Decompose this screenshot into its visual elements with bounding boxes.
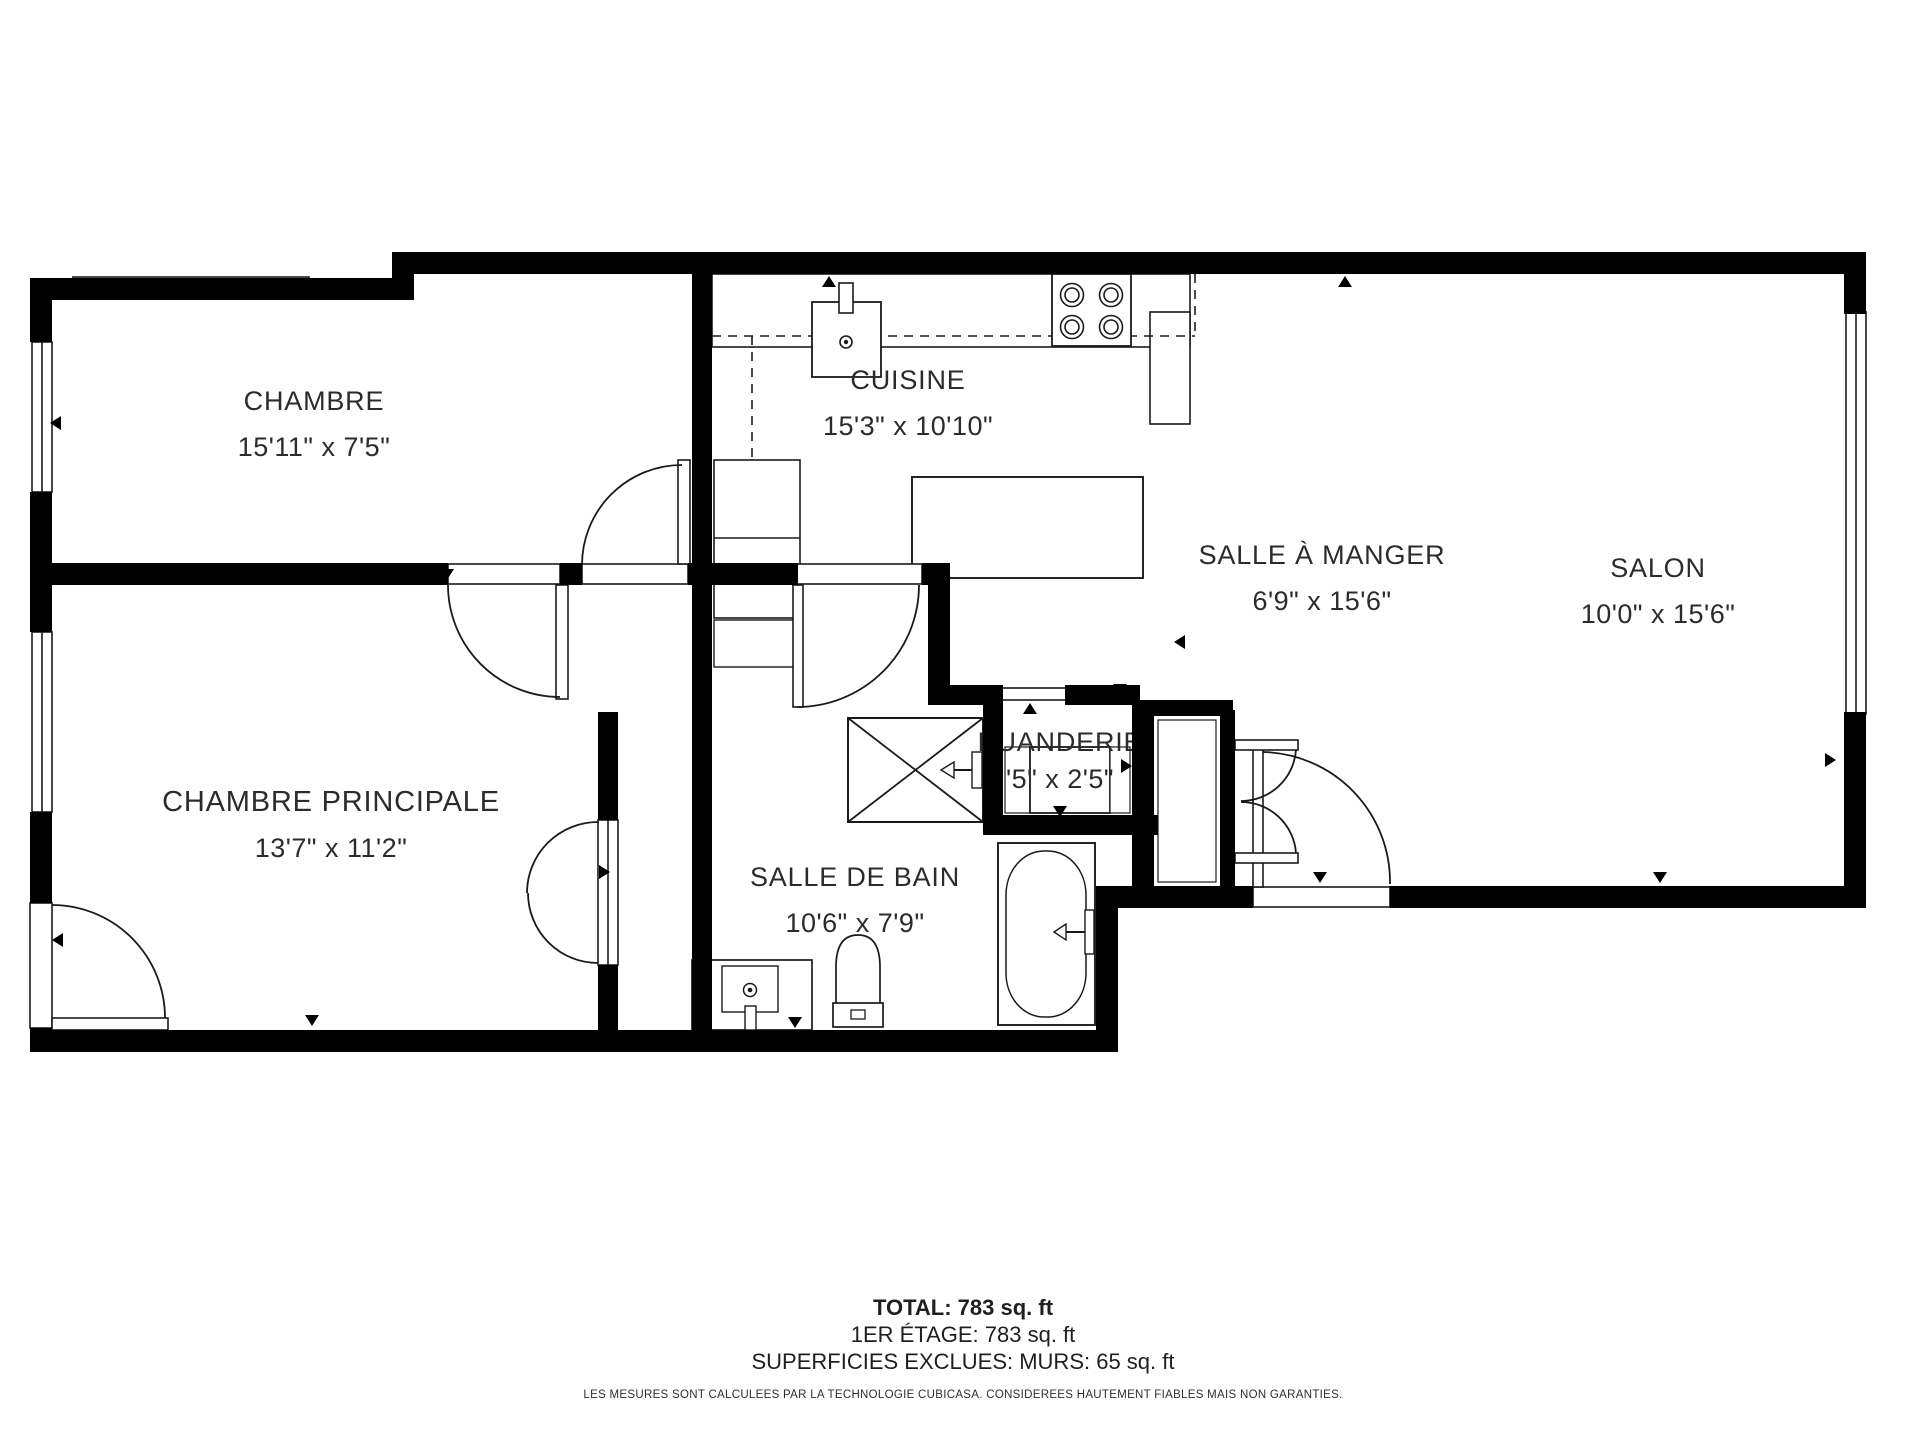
marker-left-icon	[52, 933, 63, 947]
marker-down-icon	[1313, 872, 1327, 883]
marker-right-icon	[695, 433, 706, 447]
entry-closet-shelf	[1158, 720, 1216, 882]
floorplan-canvas: CHAMBRE 15'11" x 7'5" CUISINE 15'3" x 10…	[0, 0, 1920, 1440]
wall-divider-mid	[688, 563, 798, 585]
total-area-text: TOTAL: 783 sq. ft	[583, 1294, 1342, 1321]
room-label-cuisine: CUISINE 15'3" x 10'10"	[823, 357, 993, 449]
door-master-bedroom	[448, 564, 568, 699]
door-balcony-master	[30, 903, 168, 1030]
toilet-icon	[833, 935, 883, 1027]
floor-area-text: 1ER ÉTAGE: 783 sq. ft	[583, 1321, 1342, 1348]
door-buanderie-slider	[948, 688, 1068, 700]
fridge-icon	[714, 460, 800, 667]
window-salon-right	[1846, 312, 1866, 714]
footer-summary: TOTAL: 783 sq. ft 1ER ÉTAGE: 783 sq. ft …	[583, 1294, 1342, 1401]
floorplan-walls-layer	[0, 0, 1920, 1440]
wall-right-lower	[1844, 712, 1866, 908]
wall-left-3	[30, 812, 52, 903]
room-dimensions: 6'9" x 15'6"	[1199, 578, 1446, 624]
door-bathroom	[793, 564, 922, 707]
marker-down-icon	[1113, 684, 1127, 695]
marker-up-icon	[1338, 276, 1352, 287]
room-dimensions: 10'6" x 7'9"	[750, 900, 960, 946]
wall-left-1	[30, 278, 52, 342]
kitchen-island	[912, 477, 1143, 578]
wall-entry-closet-right	[1220, 710, 1235, 886]
room-name: SALON	[1581, 545, 1736, 591]
wall-left-2	[30, 492, 52, 632]
wall-hall-jog	[928, 563, 950, 705]
room-label-salle-de-bain: SALLE DE BAIN 10'6" x 7'9"	[750, 854, 960, 946]
wall-top-right	[392, 252, 1866, 274]
wall-divider-stub	[560, 563, 582, 585]
excluded-area-text: SUPERFICIES EXCLUES: MURS: 65 sq. ft	[583, 1348, 1342, 1375]
floorplan-fixtures-layer	[0, 0, 1920, 1440]
marker-up-icon	[1023, 703, 1037, 714]
room-name: CUISINE	[823, 357, 993, 403]
door-entry-closet-bifold	[1235, 740, 1298, 863]
wall-hall-jog-horizontal	[928, 685, 1003, 705]
marker-up-icon	[245, 567, 259, 578]
window-chambre-top	[73, 277, 309, 299]
shower-icon	[848, 718, 983, 822]
door-master-closet-bifold	[527, 820, 618, 965]
wall-bath-left	[692, 585, 712, 1030]
wall-top-step	[392, 252, 414, 300]
marker-down-icon	[788, 1017, 802, 1028]
room-dimensions: 15'11" x 7'5"	[238, 424, 391, 470]
bathtub-icon	[998, 843, 1095, 1025]
marker-left-icon	[50, 416, 61, 430]
window-master-left	[32, 632, 52, 812]
stove-icon	[1052, 274, 1131, 346]
room-dimensions: 13'7" x 11'2"	[162, 825, 500, 871]
room-dimensions: 15'3" x 10'10"	[823, 403, 993, 449]
wall-top-left	[30, 278, 412, 300]
wall-salon-bottom-right	[1390, 886, 1866, 908]
marker-right-icon	[1825, 753, 1836, 767]
room-label-buanderie: BUANDERIE '5" x 2'5"	[978, 724, 1143, 798]
wall-divider-right	[922, 563, 950, 585]
wall-right-upper	[1844, 252, 1866, 314]
room-label-chambre: CHAMBRE 15'11" x 7'5"	[238, 378, 391, 470]
wall-bottom	[30, 1030, 1118, 1052]
wall-closet-top	[1132, 700, 1233, 716]
window-chambre-left	[32, 342, 52, 492]
room-label-salon: SALON 10'0" x 15'6"	[1581, 545, 1736, 637]
room-name: BUANDERIE	[978, 724, 1143, 761]
wall-kitchen-left	[692, 252, 712, 585]
doors	[30, 460, 1390, 1030]
room-label-salle-a-manger: SALLE À MANGER 6'9" x 15'6"	[1199, 532, 1446, 624]
wall-salon-bottom-left	[1108, 886, 1253, 908]
door-entry	[1253, 748, 1390, 907]
room-label-chambre-principale: CHAMBRE PRINCIPALE 13'7" x 11'2"	[162, 779, 500, 871]
room-name: CHAMBRE	[238, 378, 391, 424]
vanity-sink-icon	[692, 960, 812, 1030]
wall-buanderie-top	[1065, 685, 1140, 705]
room-name: SALLE À MANGER	[1199, 532, 1446, 578]
wall-master-right-upper	[598, 712, 618, 820]
marker-up-icon	[822, 276, 836, 287]
wall-left-4	[30, 1028, 52, 1052]
disclaimer-text: LES MESURES SONT CALCULEES PAR LA TECHNO…	[583, 1389, 1342, 1401]
marker-right-icon	[599, 865, 610, 879]
marker-down-icon	[1053, 806, 1067, 817]
room-name: SALLE DE BAIN	[750, 854, 960, 900]
wall-master-right-lower	[598, 965, 618, 1030]
wall-divider-left	[30, 563, 448, 585]
wall-step-down	[1096, 886, 1118, 1052]
wall-buanderie-bottom	[983, 815, 1158, 835]
room-dimensions: '5" x 2'5"	[978, 761, 1143, 798]
marker-down-icon	[1653, 872, 1667, 883]
marker-down-icon	[440, 569, 454, 580]
room-dimensions: 10'0" x 15'6"	[1581, 591, 1736, 637]
marker-left-icon	[1174, 635, 1185, 649]
door-chambre	[582, 460, 690, 584]
marker-down-icon	[305, 1015, 319, 1026]
room-name: CHAMBRE PRINCIPALE	[162, 779, 500, 825]
